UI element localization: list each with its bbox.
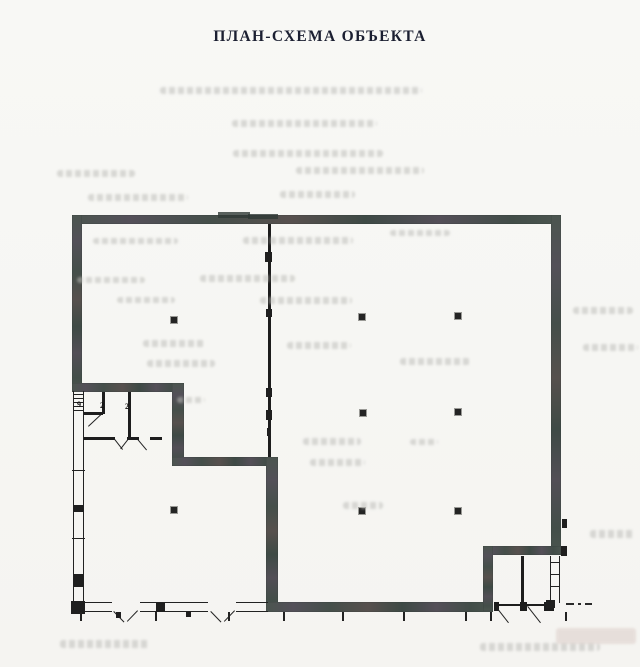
- interior-wall: [128, 392, 131, 439]
- door-swing-line: [495, 606, 509, 623]
- column-square: [455, 409, 461, 415]
- column-square: [360, 410, 366, 416]
- bleed-through-artifact: [590, 530, 635, 538]
- interior-wall: [84, 437, 115, 440]
- column-square: [171, 507, 177, 513]
- column-square: [171, 317, 177, 323]
- wall-mark: [266, 388, 272, 397]
- door-swing-line: [88, 413, 103, 427]
- window-hatch: [74, 394, 83, 395]
- bleed-through-artifact: [93, 238, 178, 244]
- wall-mark: [265, 252, 272, 262]
- thick-wall: [266, 602, 493, 612]
- survey-tick: [283, 612, 285, 621]
- door-swing-line: [210, 611, 221, 623]
- dash-dot-line: [578, 603, 581, 605]
- tick-mark: [186, 611, 191, 617]
- bleed-through-artifact: [480, 643, 600, 651]
- wall-mark: [266, 410, 272, 420]
- bleed-through-artifact: [147, 360, 215, 367]
- tick-mark: [116, 612, 121, 618]
- bleed-through-artifact: [410, 439, 438, 445]
- door-swing-line: [127, 610, 138, 622]
- double-wall-horizontal: [236, 602, 268, 612]
- wall-shade-mark: [248, 214, 278, 219]
- floor-plan: 922: [0, 0, 640, 667]
- thick-wall: [266, 457, 278, 612]
- thick-wall: [172, 457, 277, 466]
- bleed-through-artifact: [57, 170, 135, 177]
- wall-mark: [73, 574, 84, 587]
- survey-tick: [342, 612, 344, 621]
- thick-wall: [551, 215, 561, 555]
- bleed-through-artifact: [343, 502, 383, 509]
- bleed-through-artifact: [280, 191, 355, 198]
- survey-tick: [565, 612, 567, 621]
- room-number-label: 2: [100, 402, 104, 410]
- bleed-through-artifact: [296, 167, 424, 174]
- thick-wall: [172, 383, 184, 466]
- bleed-through-artifact: [573, 307, 633, 314]
- window-hatch: [551, 562, 559, 563]
- thick-wall: [483, 546, 561, 555]
- survey-tick: [465, 612, 467, 621]
- interior-wall: [521, 556, 524, 604]
- bleed-through-artifact: [233, 150, 383, 157]
- window-hatch: [72, 470, 85, 471]
- wall-shade-mark: [218, 212, 250, 218]
- survey-tick: [403, 612, 405, 621]
- thick-wall: [72, 215, 561, 224]
- wall-mark: [266, 309, 272, 317]
- bleed-through-artifact: [583, 344, 638, 351]
- double-wall-horizontal: [140, 602, 208, 612]
- window-hatch: [551, 574, 559, 575]
- thick-wall: [72, 215, 82, 392]
- bleed-through-artifact: [232, 120, 377, 127]
- bleed-through-artifact: [556, 628, 636, 644]
- column-square: [455, 508, 461, 514]
- wall-mark: [156, 602, 165, 612]
- window-hatch: [551, 586, 559, 587]
- bleed-through-artifact: [60, 640, 150, 648]
- double-wall-vertical: [73, 391, 84, 603]
- bleed-through-artifact: [77, 277, 145, 283]
- dash-dot-line: [585, 603, 592, 605]
- thick-wall: [483, 546, 493, 611]
- bleed-through-artifact: [243, 237, 353, 244]
- bleed-through-artifact: [310, 459, 365, 466]
- bleed-through-artifact: [160, 87, 422, 94]
- wall-mark: [71, 601, 85, 614]
- bleed-through-artifact: [303, 438, 361, 445]
- door-swing-line: [527, 606, 541, 623]
- bleed-through-artifact: [390, 230, 450, 236]
- survey-tick: [228, 612, 230, 621]
- bleed-through-artifact: [177, 397, 205, 403]
- dash-dot-line: [566, 603, 574, 605]
- window-hatch: [74, 410, 83, 411]
- wall-mark: [73, 505, 84, 512]
- scanned-page: ПЛАН-СХЕМА ОБЪЕКТА 922: [0, 0, 640, 667]
- wall-mark: [561, 546, 567, 556]
- bleed-through-artifact: [143, 340, 205, 347]
- bleed-through-artifact: [260, 297, 352, 304]
- bleed-through-artifact: [400, 358, 470, 365]
- wall-mark: [546, 600, 555, 608]
- column-square: [359, 314, 365, 320]
- bleed-through-artifact: [88, 194, 188, 201]
- column-square: [455, 313, 461, 319]
- bleed-through-artifact: [117, 297, 175, 303]
- survey-tick: [155, 612, 157, 621]
- interior-wall: [150, 437, 162, 440]
- survey-tick: [80, 612, 82, 621]
- interior-wall: [527, 604, 544, 606]
- wall-mark: [267, 428, 271, 436]
- survey-tick: [490, 612, 492, 621]
- room-number-label: 9: [77, 401, 81, 409]
- thick-wall: [72, 383, 184, 392]
- window-hatch: [72, 538, 85, 539]
- interior-wall: [499, 604, 520, 606]
- door-swing-line: [137, 439, 147, 451]
- wall-mark: [562, 519, 567, 528]
- bleed-through-artifact: [287, 342, 351, 349]
- door-swing-line: [120, 438, 129, 449]
- room-number-label: 2: [125, 403, 129, 411]
- bleed-through-artifact: [200, 275, 295, 282]
